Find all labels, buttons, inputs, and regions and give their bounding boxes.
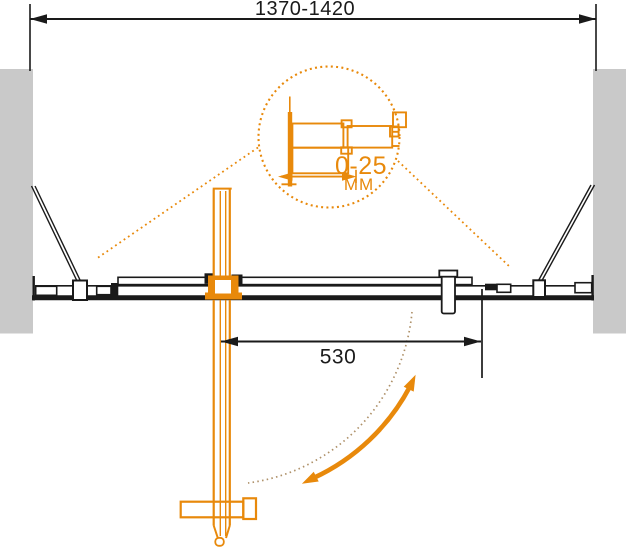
shower-door-plan-diagram: 1370-1420 530 0-25 MM — [0, 0, 626, 549]
rail-end-stop-right — [485, 284, 497, 291]
door-tip-taper-right — [226, 526, 230, 539]
total-width-arrow-right — [579, 14, 596, 24]
orange-fills — [205, 172, 416, 483]
right-adjuster-bracket — [497, 284, 511, 292]
door-tip-taper-left — [214, 526, 218, 539]
right-side-panel-glass — [539, 185, 595, 281]
orange-labels: 0-25 MM — [335, 152, 387, 194]
black-labels: 1370-1420 530 — [255, 0, 356, 369]
left-pivot-bracket — [73, 281, 87, 301]
walls — [0, 69, 626, 334]
total-width-label: 1370-1420 — [255, 0, 355, 20]
left-adjuster-bracket — [97, 286, 111, 294]
right-wall — [593, 69, 626, 334]
technical-drawing-canvas: 1370-1420 530 0-25 MM — [0, 0, 626, 549]
door-width-arrow-right — [464, 337, 481, 346]
right-pivot-bracket — [533, 280, 545, 297]
black-fills — [30, 14, 596, 297]
detail-callout-circle — [259, 67, 400, 208]
detail-outer-profile — [292, 124, 343, 148]
pivot-knob-cap — [439, 271, 457, 277]
right-wall-bracket — [575, 283, 592, 293]
leader-line-left — [96, 148, 258, 260]
door-panel-open — [181, 189, 256, 546]
handle-crossbar — [181, 502, 244, 518]
swing-arrow-head-upper — [404, 375, 416, 392]
adjustment-unit-label: MM — [344, 175, 374, 194]
door-swing-path-arc — [248, 312, 412, 483]
door-width-label: 530 — [320, 346, 357, 369]
pivot-knob — [439, 271, 457, 314]
rail-end-stop-left — [111, 283, 118, 297]
handle-end-cap — [243, 498, 256, 519]
left-wall-bracket — [36, 286, 57, 295]
left-side-panel-glass — [32, 186, 82, 282]
door-panel-closed-rail — [118, 277, 472, 284]
swing-arrow-head-lower — [302, 472, 319, 484]
black-linework — [30, 4, 596, 314]
total-width-arrow-left — [30, 14, 47, 24]
detail-inner-profile — [348, 126, 393, 148]
hinge-notch — [215, 280, 231, 294]
pivot-knob-stem — [442, 273, 455, 314]
detail-arrow-left — [278, 172, 293, 180]
leader-line-right — [398, 161, 511, 268]
door-hinge-bracket — [205, 276, 242, 300]
door-tip-nub — [215, 538, 224, 546]
left-wall — [0, 69, 33, 334]
door-swing-arrow-body — [314, 387, 411, 479]
